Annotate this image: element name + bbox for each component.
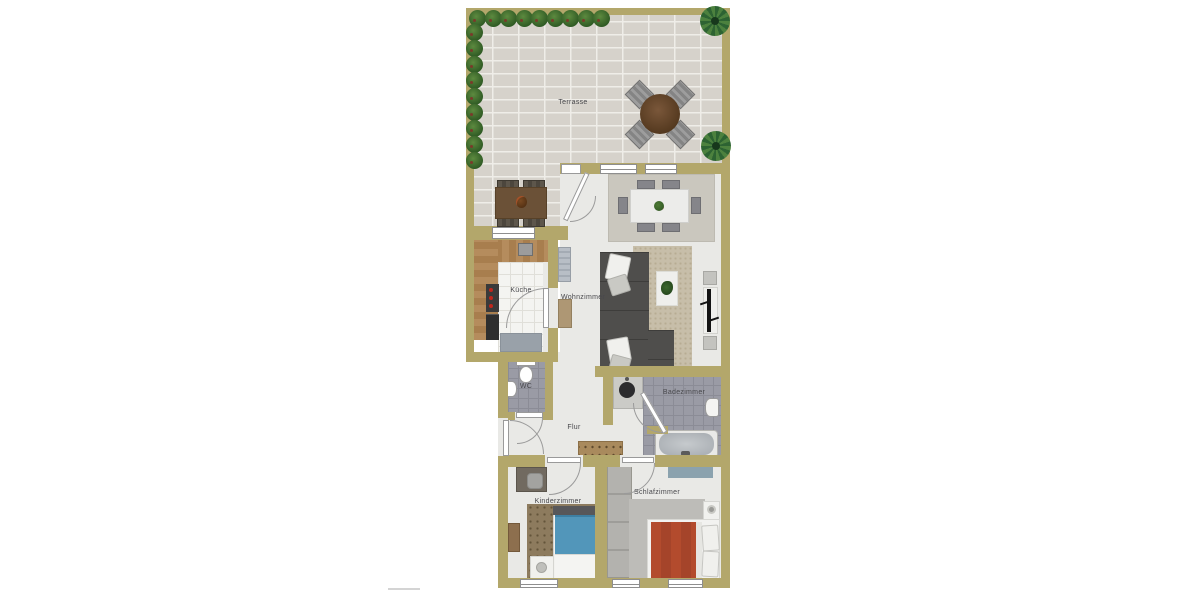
round-table <box>640 94 680 134</box>
nightstand-lamp <box>707 505 716 514</box>
label-wc: WC <box>520 383 532 391</box>
patio-table-plant <box>516 196 527 208</box>
stove-knob <box>489 288 493 292</box>
hall-cabinet <box>558 299 572 328</box>
kids-bed-headboard <box>553 506 598 515</box>
washbasin-faucet <box>625 377 629 381</box>
kids-shelf <box>508 523 520 552</box>
label-wohnzimmer: Wohnzimmer <box>561 294 605 302</box>
hedge-bush <box>500 10 517 27</box>
window-living-1 <box>600 164 637 174</box>
window-schlafzimmer-1 <box>612 579 640 588</box>
wall-flur-bottom <box>498 455 730 467</box>
dining-chair <box>618 197 628 214</box>
hedge-bush <box>516 10 533 27</box>
window-kitchen <box>492 227 535 239</box>
floor-plan: Terrasse Küche Wohnzimmer Flur WC Badezi… <box>0 0 1200 600</box>
entry-door <box>503 420 509 456</box>
kitchen-door-gap <box>548 288 558 328</box>
patio-chair <box>497 218 519 227</box>
patio-chair <box>523 218 545 227</box>
watermark <box>388 588 420 590</box>
toilet-bowl <box>519 366 533 383</box>
palm-plant <box>701 131 731 161</box>
label-kueche: Küche <box>510 287 531 295</box>
speaker <box>703 336 717 350</box>
bed-pillow <box>701 551 719 578</box>
hedge-bush <box>485 10 502 27</box>
wall-right <box>721 163 730 588</box>
washbasin <box>619 382 635 398</box>
table-plant <box>654 201 664 211</box>
hedge-bush <box>466 88 483 105</box>
kids-desk-chair <box>527 473 543 489</box>
stove-knob <box>489 296 493 300</box>
radiator <box>558 247 571 282</box>
speaker <box>703 271 717 285</box>
wall-bath-top <box>595 366 730 377</box>
dining-chair <box>662 223 680 232</box>
window-schlafzimmer-2 <box>668 579 703 588</box>
kitchen-mat <box>500 333 542 352</box>
window-kinderzimmer <box>520 579 558 588</box>
wall-kinder-schlaf <box>595 455 607 588</box>
hedge-bush <box>466 120 483 137</box>
hedge-bush <box>466 136 483 153</box>
hedge-bush <box>562 10 579 27</box>
label-flur: Flur <box>567 424 580 432</box>
wall-wc-right <box>545 352 553 420</box>
bed-duvet <box>651 522 696 580</box>
palm-plant <box>700 6 730 36</box>
tv <box>707 289 711 332</box>
hedge-bush <box>547 10 564 27</box>
label-schlafzimmer: Schlafzimmer <box>634 489 680 497</box>
hedge-bush <box>466 152 483 169</box>
dining-chair <box>637 223 655 232</box>
hedge-bush <box>466 56 483 73</box>
window-living-2 <box>645 164 677 174</box>
wall-left-lower <box>498 352 508 588</box>
hedge-bush <box>578 10 595 27</box>
stove-knob <box>489 304 493 308</box>
label-terrasse: Terrasse <box>558 99 587 107</box>
sofa-chaise <box>648 330 674 367</box>
label-kinderzimmer: Kinderzimmer <box>535 498 582 506</box>
hedge-bush <box>466 104 483 121</box>
hedge-bush <box>466 72 483 89</box>
bed-pillow <box>701 524 720 551</box>
dining-chair <box>637 180 655 189</box>
dining-chair <box>691 197 701 214</box>
wall-sink <box>705 398 719 417</box>
kids-side-table-seat <box>536 562 547 573</box>
hedge-bush <box>466 24 483 41</box>
dishwasher <box>486 314 499 340</box>
dining-chair <box>662 180 680 189</box>
hedge-bush <box>466 40 483 57</box>
kids-bed-duvet <box>555 515 596 554</box>
terrace-paving <box>466 8 730 163</box>
kitchen-sink <box>518 243 533 256</box>
label-badezimmer: Badezimmer <box>663 389 705 397</box>
kids-bed-sheet <box>555 554 596 580</box>
terrace-door-threshold <box>561 164 581 174</box>
hedge-bush <box>593 10 610 27</box>
hedge-bush <box>531 10 548 27</box>
wall-bath-left <box>603 375 613 425</box>
